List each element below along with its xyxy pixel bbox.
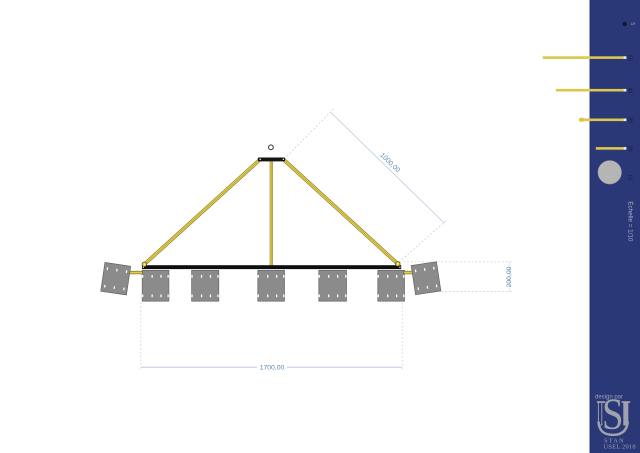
svg-text:S: S (602, 389, 624, 438)
svg-text:Échelle = 1/10: Échelle = 1/10 (626, 201, 635, 242)
svg-text:40: 40 (627, 87, 633, 93)
svg-text:200,00: 200,00 (506, 266, 513, 287)
svg-text:50: 50 (627, 55, 633, 61)
svg-text:30: 30 (627, 117, 633, 123)
svg-text:5: 5 (629, 22, 635, 25)
svg-text:USEL 2018: USEL 2018 (603, 443, 635, 450)
svg-text:1700,00: 1700,00 (260, 365, 285, 372)
svg-text:20: 20 (627, 146, 633, 152)
svg-text:10: 10 (627, 174, 633, 180)
